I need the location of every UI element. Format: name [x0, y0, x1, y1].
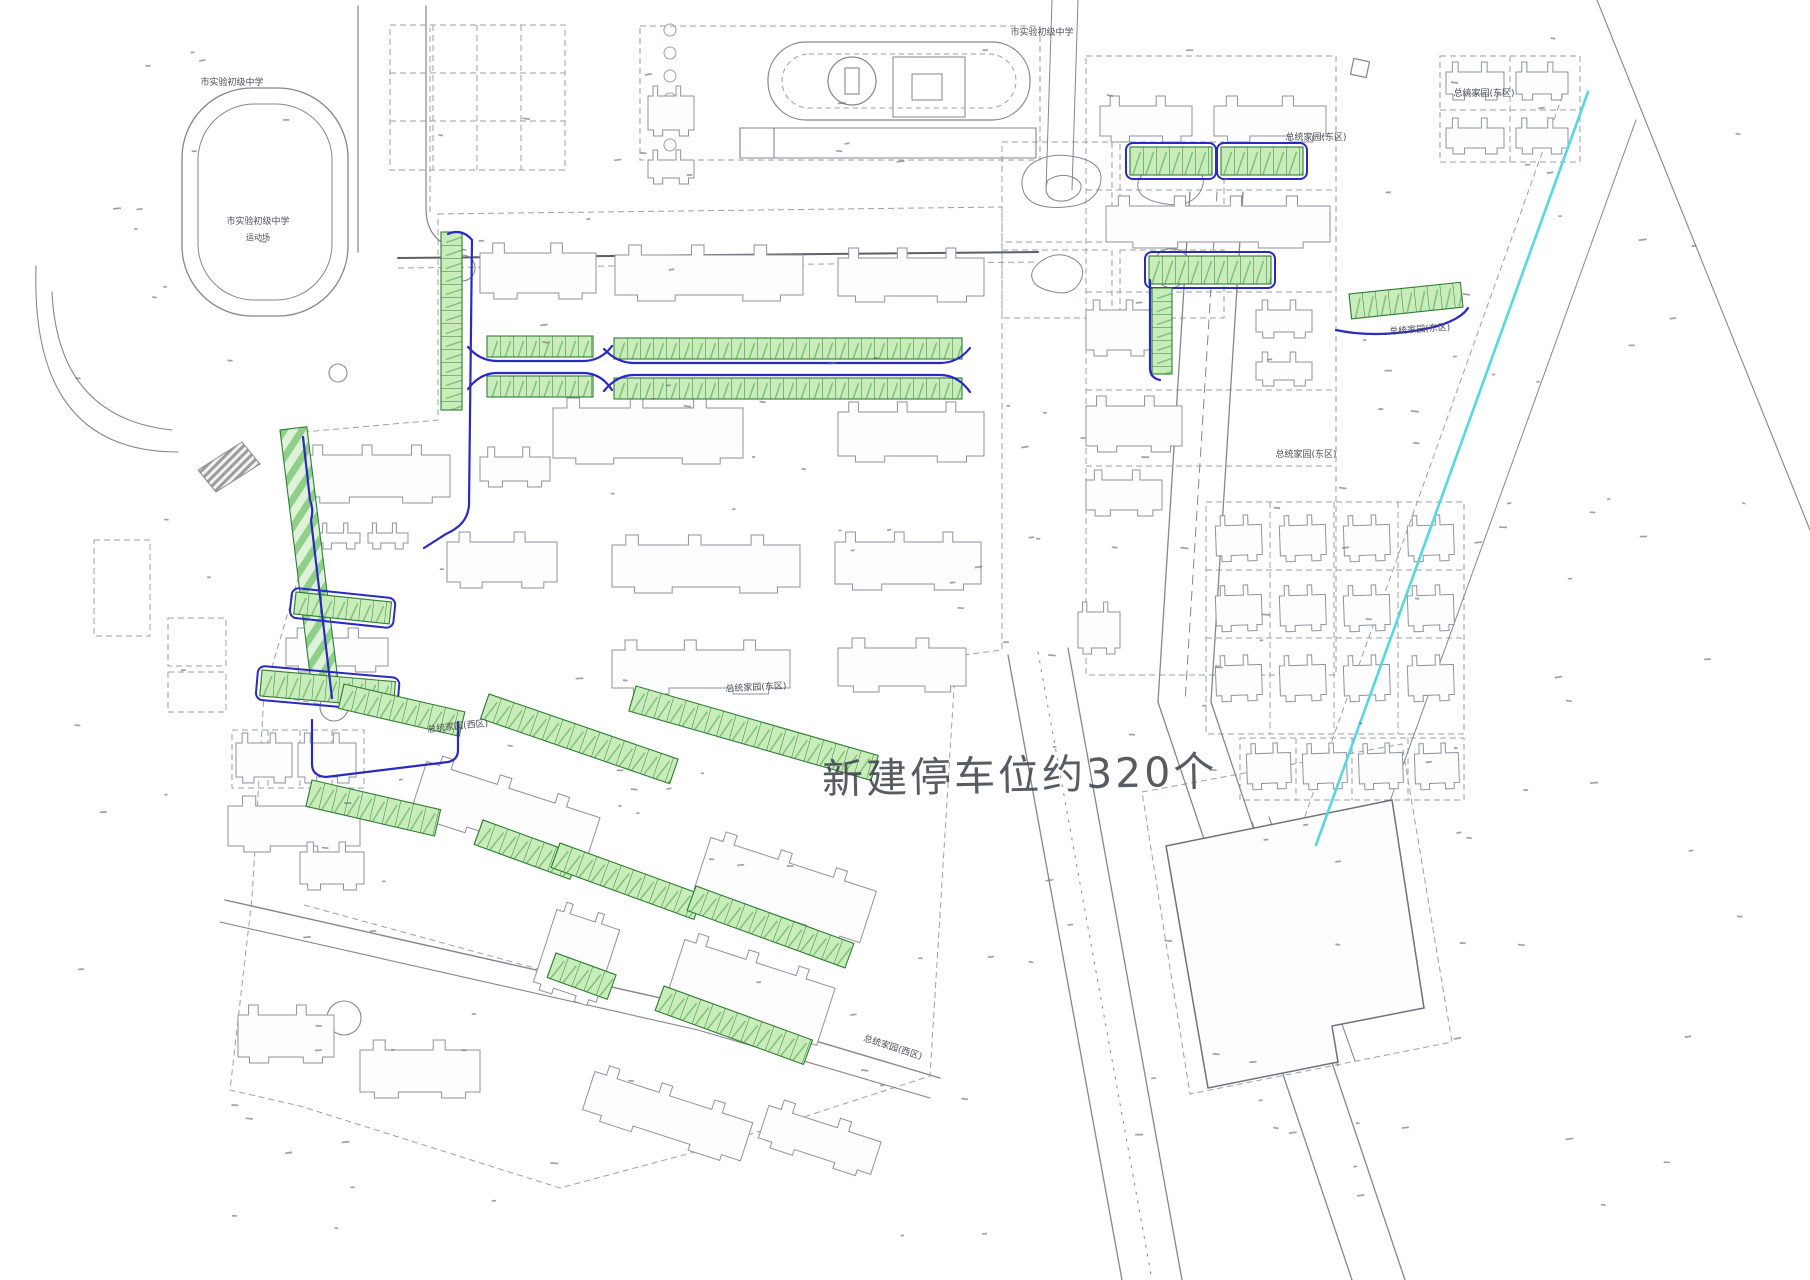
area-label: 总统家园(东区) — [1453, 87, 1514, 99]
site-plan-drawing: 市实验初级中学市实验初级中学运动场市实验初级中学总统家园(东区)总统家园(东区)… — [0, 0, 1810, 1280]
area-label: 总统家园(东区) — [1275, 448, 1336, 460]
area-label: 总统家园(东区) — [1285, 131, 1346, 143]
river-channel-line — [1316, 92, 1588, 845]
building-outlines — [228, 62, 1568, 1180]
area-label: 总统家园(东区) — [1389, 321, 1451, 337]
area-label: 运动场 — [246, 232, 270, 242]
area-label: 市实验初级中学 — [226, 215, 289, 227]
area-label: 市实验初级中学 — [200, 76, 263, 88]
site-plan-canvas: 市实验初级中学市实验初级中学运动场市实验初级中学总统家园(东区)总统家园(东区)… — [0, 0, 1810, 1280]
area-label: 市实验初级中学 — [1010, 26, 1073, 38]
